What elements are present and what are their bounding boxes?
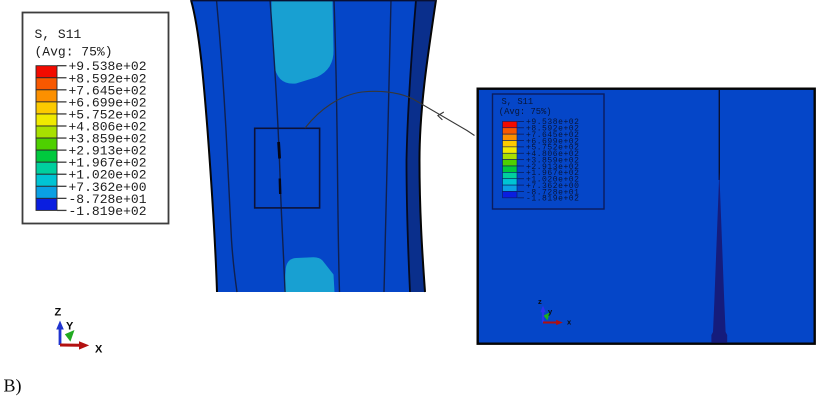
svg-text:Z: Z xyxy=(55,307,62,319)
svg-text:Y: Y xyxy=(66,321,74,333)
svg-text:(Avg: 75%): (Avg: 75%) xyxy=(499,107,552,117)
svg-text:S, S11: S, S11 xyxy=(35,27,82,42)
svg-text:-1.819e+02: -1.819e+02 xyxy=(69,204,147,219)
svg-text:(Avg: 75%): (Avg: 75%) xyxy=(35,45,113,60)
svg-text:S, S11: S, S11 xyxy=(502,97,534,107)
svg-text:X: X xyxy=(95,344,103,356)
svg-text:B): B) xyxy=(4,376,22,397)
svg-text:-1.819e+02: -1.819e+02 xyxy=(526,195,580,204)
svg-text:z: z xyxy=(538,297,542,306)
